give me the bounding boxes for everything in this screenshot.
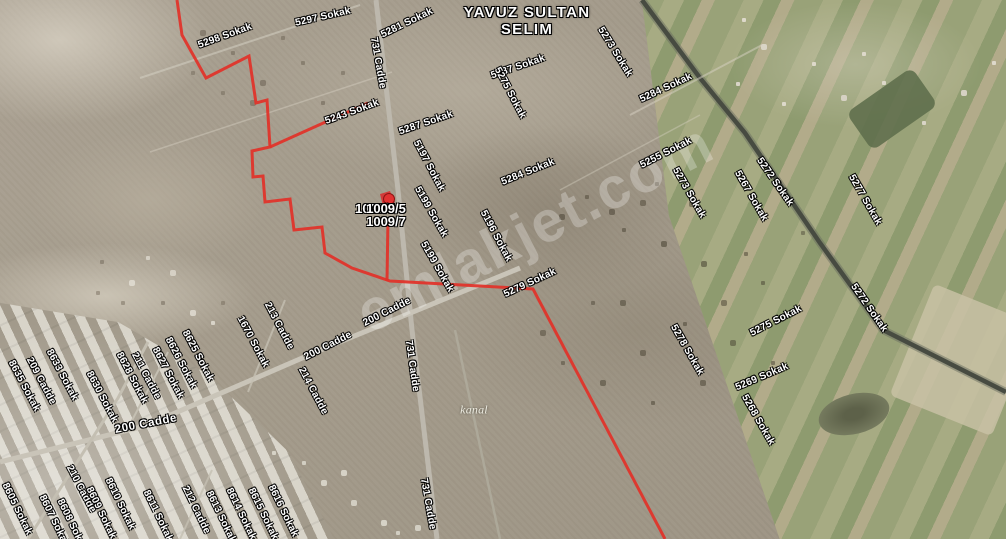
street-label: 5273 Sokak (670, 166, 708, 220)
district-title-line2: SELIM (464, 21, 591, 38)
district-title-line1: YAVUZ SULTAN (464, 4, 591, 21)
street-label: 731 Cadde (403, 340, 421, 393)
street-label: 1670 Sokak (235, 314, 271, 369)
street-label: 5298 Sokak (197, 21, 254, 51)
street-label: 8605 Sokak (0, 481, 34, 537)
street-label: 5197 Sokak (411, 138, 447, 193)
street-label: 5278 Sokak (668, 323, 706, 377)
street-label: 5199 Sokak (412, 185, 450, 239)
street-label: 731 Cadde (368, 37, 388, 90)
district-title: YAVUZ SULTAN SELIM (464, 4, 591, 38)
street-label: 5272 Sokak (848, 282, 889, 335)
street-label: 5275 Sokak (748, 303, 803, 338)
street-label: 214 Cadde (296, 366, 330, 417)
street-label: 200 Cadde (302, 329, 353, 362)
street-label: 5277 Sokak (846, 173, 884, 227)
street-label: 5243 Sokak (324, 97, 381, 127)
street-labels-layer: 5298 Sokak5297 Sokak5281 Sokak731 Cadde5… (0, 0, 1006, 539)
street-label: 5269 Sokak (734, 361, 790, 393)
parcel-labels: 1009/5 1009/7 (366, 202, 406, 228)
street-label: 5272 Sokak (754, 156, 795, 209)
street-label: 5255 Sokak (638, 135, 693, 170)
street-label: 200 Cadde (114, 412, 178, 436)
street-label: 5268 Sokak (739, 393, 777, 447)
street-label: 5281 Sokak (379, 6, 435, 41)
street-label: 8611 Sokak (141, 488, 175, 539)
street-label: 5287 Sokak (397, 109, 454, 138)
street-label: 8630 Sokak (84, 369, 120, 424)
street-label: 731 Cadde (418, 478, 438, 531)
street-label: 5284 Sokak (500, 156, 557, 187)
street-label: 5199 Sokak (418, 240, 456, 294)
street-label: 5279 Sokak (502, 266, 558, 300)
street-label: 200 Cadde (361, 295, 412, 328)
parcel-number-2: 1009/7 (366, 215, 406, 228)
street-label: 213 Cadde (262, 301, 296, 352)
street-label: 5196 Sokak (478, 208, 514, 263)
street-label: 5273 Sokak (595, 25, 634, 79)
water-label: kanal (460, 403, 488, 418)
satellite-map[interactable]: emlakjet.com 5298 Sokak5297 Sokak5281 So… (0, 0, 1006, 539)
street-label: 5284 Sokak (638, 71, 694, 105)
street-label: 5297 Sokak (294, 5, 352, 28)
